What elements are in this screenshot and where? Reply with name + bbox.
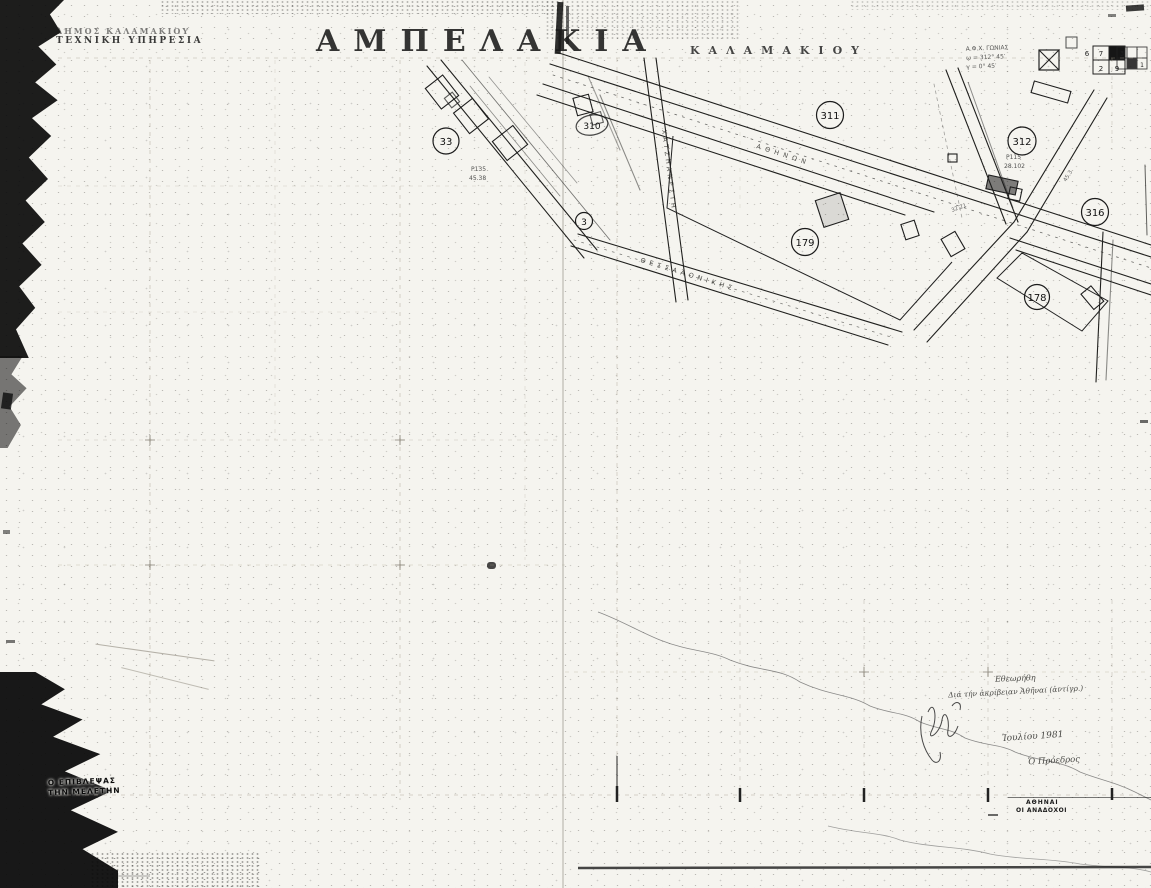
avenue-edge-1 bbox=[556, 52, 1151, 245]
handwritten-checked: Εθεωρήθη bbox=[995, 673, 1036, 683]
diagonal-street-edge-2 bbox=[571, 246, 888, 345]
right-street-plot-line bbox=[934, 84, 962, 218]
block-number-3: 3 bbox=[581, 218, 587, 228]
building bbox=[986, 175, 1018, 195]
block-number-312: 312 bbox=[1012, 137, 1031, 148]
building bbox=[948, 154, 957, 162]
street-label-avenue: ΑΘΗΝΩΝ bbox=[755, 142, 811, 167]
dimension-label: 45.3 bbox=[1063, 169, 1075, 183]
building bbox=[454, 98, 489, 133]
bottom-right-dash bbox=[988, 814, 998, 816]
parcel-code-1-line1: Ρ135 bbox=[471, 166, 486, 173]
block-number-179: 179 bbox=[795, 238, 814, 249]
buildings bbox=[425, 75, 1103, 310]
avenue-centerline bbox=[553, 75, 1151, 268]
street-name-labels: ΑΘΗΝΩΝ ΧΑΤΖΗΑΝΕΣΤΗ ΘΕΣΣΑΛΟΝΙΚΗΣ bbox=[639, 129, 811, 293]
avenue-edge-2 bbox=[550, 64, 1151, 257]
building bbox=[492, 126, 527, 161]
block-number-316: 316 bbox=[1085, 208, 1104, 219]
stream-line-2 bbox=[828, 826, 1151, 872]
bottom-right-rule bbox=[1008, 797, 1151, 798]
left-street-edge-1 bbox=[427, 66, 584, 258]
block-number-310: 310 bbox=[583, 122, 600, 132]
left-street-edge-2 bbox=[441, 60, 597, 250]
block-number-33: 33 bbox=[440, 137, 453, 148]
block-number-labels: 33 310 3 311 312 316 179 178 bbox=[440, 111, 1105, 304]
diagonal-street-edge-1 bbox=[578, 234, 902, 332]
stream-line-1 bbox=[598, 612, 1151, 800]
bottom-border-line bbox=[578, 867, 1151, 868]
bottom-right-contractors: ΟΙ ΑΝΑΔΟΧΟΙ bbox=[1016, 807, 1067, 814]
grid-cross-ticks bbox=[145, 435, 993, 677]
building bbox=[901, 220, 919, 240]
parcel-code-1-line2: 45.38 bbox=[469, 175, 486, 182]
contour-lines bbox=[598, 612, 1151, 872]
dimension-label: 32.21 bbox=[951, 203, 968, 214]
scanned-map-sheet: ΔΗΜΟΣ ΚΑΛΑΜΑΚΙΟΥ ΤΕΧΝΙΚΗ ΥΠΗΡΕΣΙΑ ΑΜΠΕΛΑ… bbox=[0, 0, 1151, 888]
south-street-edge-2 bbox=[1106, 240, 1113, 380]
bottom-right-city: ΑΘΗΝΑΙ bbox=[1026, 799, 1059, 806]
block-number-circles bbox=[433, 102, 1109, 310]
parcel-code-2-line2: 28.102 bbox=[1004, 163, 1025, 170]
building bbox=[1031, 81, 1071, 103]
map-linework-svg: 33 310 3 311 312 316 179 178 ΑΘΗΝΩΝ ΧΑΤΖ… bbox=[0, 0, 1151, 888]
building bbox=[425, 75, 458, 109]
plot-line bbox=[489, 77, 577, 183]
parcel-code-2-line1: Ρ115 bbox=[1006, 154, 1021, 161]
street-lines bbox=[427, 52, 1151, 382]
block-number-178: 178 bbox=[1027, 293, 1046, 304]
margin-line bbox=[1145, 165, 1147, 235]
building bbox=[941, 231, 965, 256]
building bbox=[815, 193, 848, 228]
street-label-diagonal: ΘΕΣΣΑΛΟΝΙΚΗΣ bbox=[639, 256, 736, 293]
block-number-311: 311 bbox=[820, 111, 839, 122]
stamp-left: Ο ΕΠΙΒΛΕΨΑΣ ΤΗΝ ΜΕΛΕΤΗΝ bbox=[48, 776, 121, 798]
avenue-edge-4 bbox=[537, 95, 1151, 295]
avenue-edge-3 bbox=[543, 84, 1151, 284]
